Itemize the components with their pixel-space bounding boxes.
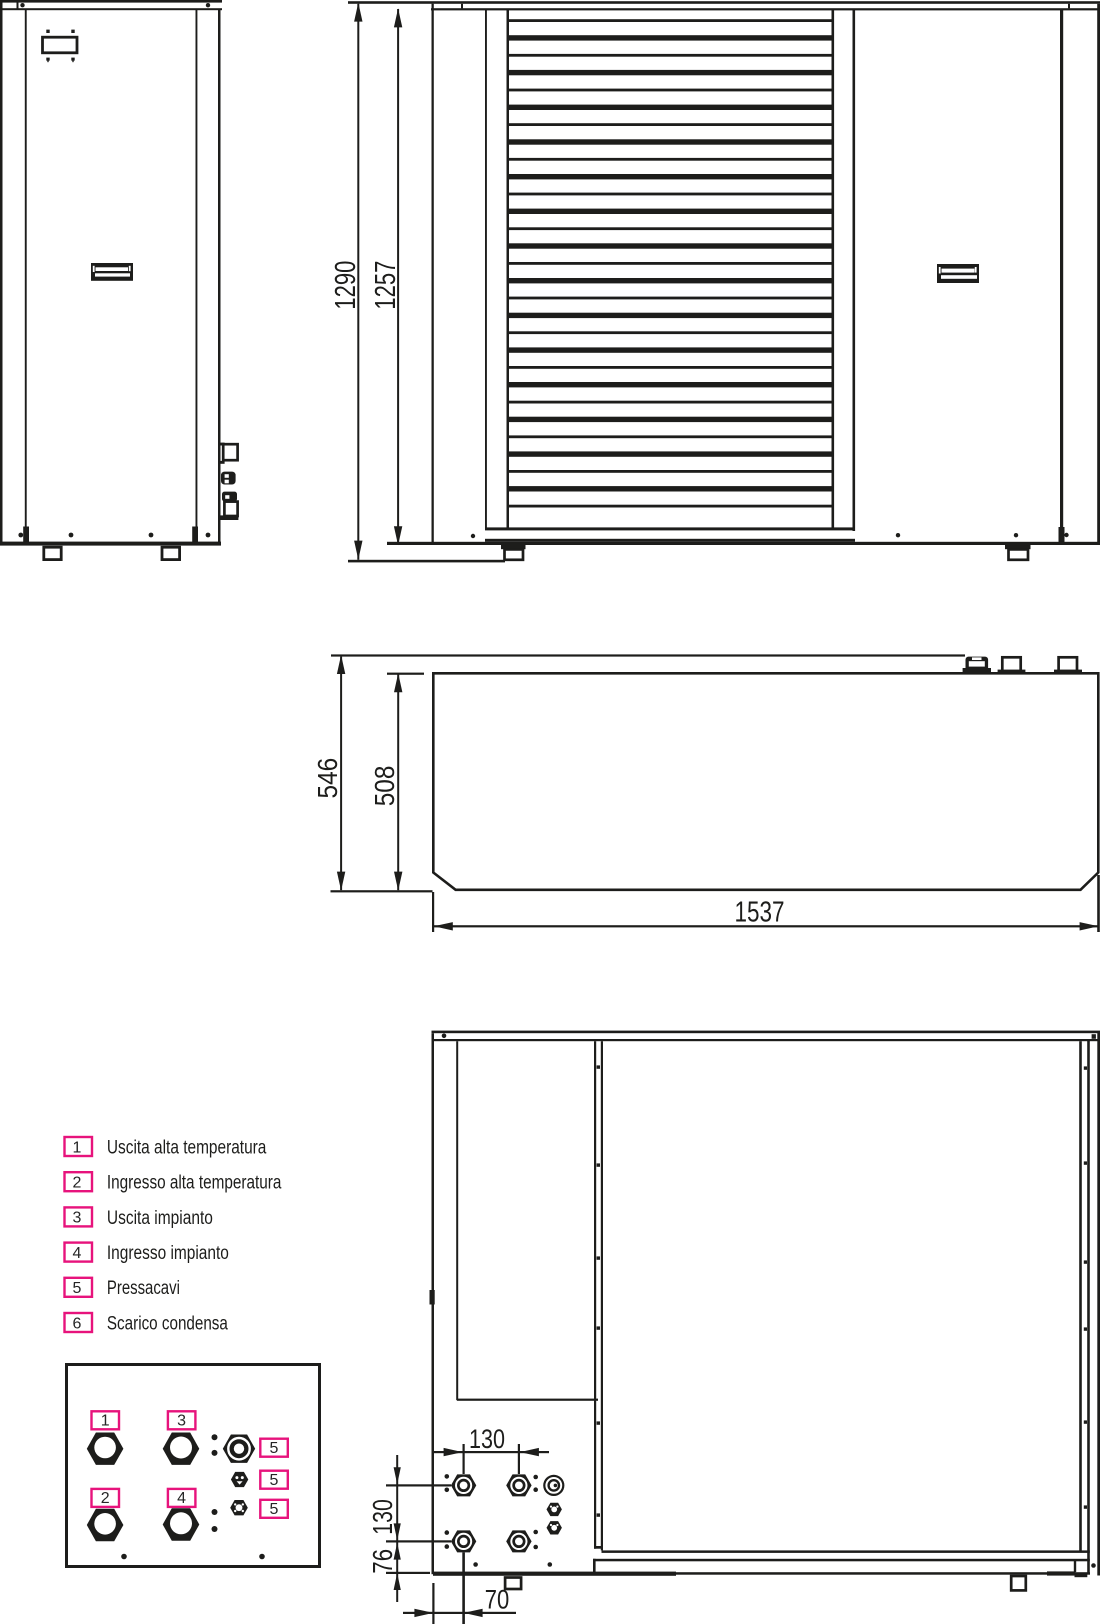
svg-text:76: 76 (367, 1549, 398, 1574)
svg-text:3: 3 (177, 1413, 186, 1430)
svg-text:130: 130 (469, 1424, 505, 1454)
svg-text:4: 4 (73, 1245, 82, 1262)
svg-text:5: 5 (270, 1440, 279, 1457)
svg-text:3: 3 (73, 1210, 82, 1227)
svg-text:1: 1 (73, 1139, 82, 1156)
svg-text:Ingresso alta temperatura: Ingresso alta temperatura (107, 1173, 282, 1194)
svg-text:70: 70 (485, 1584, 510, 1614)
svg-text:Pressacavi: Pressacavi (107, 1278, 180, 1299)
svg-text:1257: 1257 (370, 261, 402, 310)
svg-text:5: 5 (73, 1280, 82, 1297)
svg-text:2: 2 (101, 1490, 110, 1507)
svg-text:1290: 1290 (330, 261, 362, 310)
svg-text:4: 4 (177, 1490, 186, 1507)
svg-text:Scarico condensa: Scarico condensa (107, 1313, 228, 1334)
svg-text:1: 1 (101, 1413, 110, 1430)
svg-text:130: 130 (367, 1499, 398, 1535)
svg-text:5: 5 (270, 1501, 279, 1518)
svg-text:Ingresso impianto: Ingresso impianto (107, 1243, 229, 1264)
svg-text:546: 546 (312, 758, 343, 799)
svg-text:6: 6 (73, 1315, 82, 1332)
svg-text:Uscita impianto: Uscita impianto (107, 1208, 213, 1229)
svg-text:5: 5 (270, 1472, 279, 1489)
svg-text:508: 508 (369, 766, 400, 807)
svg-text:1537: 1537 (735, 897, 785, 929)
svg-text:2: 2 (73, 1175, 82, 1192)
svg-text:Uscita alta temperatura: Uscita alta temperatura (107, 1137, 267, 1158)
